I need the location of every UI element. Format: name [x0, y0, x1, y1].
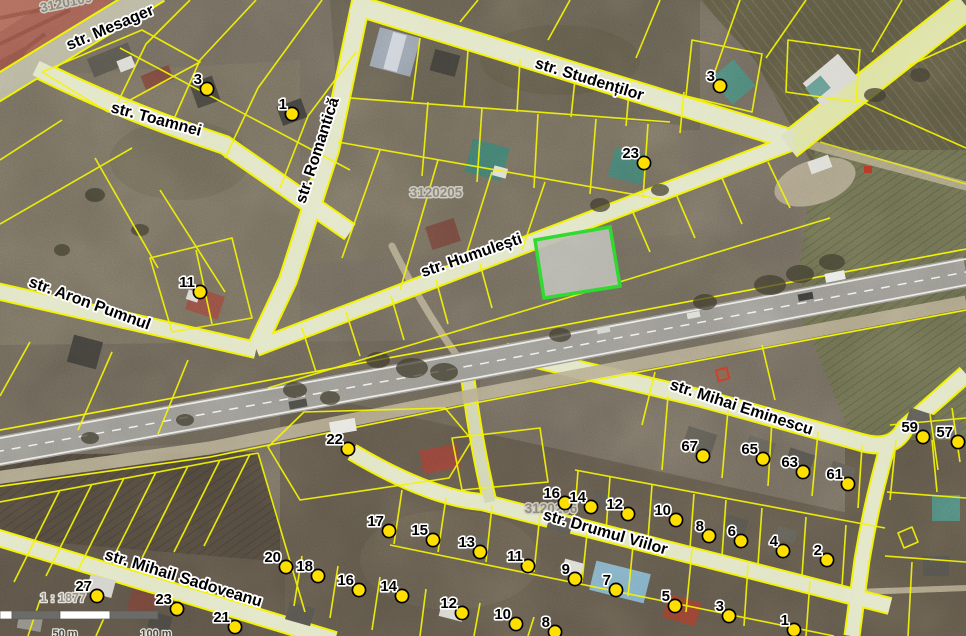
- marker-dot-icon[interactable]: [548, 625, 561, 636]
- marker-number: 5: [662, 588, 670, 605]
- marker-number: 3: [194, 71, 202, 88]
- marker-dot-icon[interactable]: [311, 569, 324, 582]
- marker-number: 12: [606, 496, 623, 513]
- marker-dot-icon[interactable]: [722, 609, 735, 622]
- marker-number: 2: [814, 542, 822, 559]
- marker-number: 59: [901, 419, 918, 436]
- marker-number: 8: [542, 614, 550, 631]
- marker-number: 14: [380, 578, 397, 595]
- marker-dot-icon[interactable]: [668, 599, 681, 612]
- marker-dot-icon[interactable]: [841, 477, 854, 490]
- marker-dot-icon[interactable]: [734, 534, 747, 547]
- marker-dot-icon[interactable]: [637, 156, 650, 169]
- marker-dot-icon[interactable]: [787, 623, 800, 636]
- marker-number: 17: [367, 513, 384, 530]
- marker-number: 11: [507, 548, 523, 565]
- marker-number: 22: [326, 431, 343, 448]
- marker-dot-icon[interactable]: [584, 500, 597, 513]
- marker-number: 20: [264, 549, 281, 566]
- marker-dot-icon[interactable]: [509, 617, 522, 630]
- marker-number: 7: [603, 572, 611, 589]
- marker-number: 9: [562, 561, 570, 578]
- marker-number: 21: [213, 609, 230, 626]
- marker-dot-icon[interactable]: [696, 449, 709, 462]
- marker-dot-icon[interactable]: [796, 465, 809, 478]
- marker-number: 23: [622, 145, 639, 162]
- marker-dot-icon[interactable]: [285, 107, 298, 120]
- marker-number: 16: [543, 485, 560, 502]
- marker-number: 65: [741, 441, 758, 458]
- marker-dot-icon[interactable]: [228, 620, 241, 633]
- marker-dot-icon[interactable]: [756, 452, 769, 465]
- map-viewport[interactable]: 3120109312010931202053120205312020631202…: [0, 0, 966, 636]
- marker-dot-icon[interactable]: [382, 524, 395, 537]
- marker-dot-icon[interactable]: [426, 533, 439, 546]
- marker-dot-icon[interactable]: [669, 513, 682, 526]
- marker-number: 18: [296, 558, 313, 575]
- marker-number: 57: [936, 424, 953, 441]
- marker-dot-icon[interactable]: [568, 572, 581, 585]
- marker-dot-icon[interactable]: [279, 560, 292, 573]
- scale-distance-label: 50 m: [52, 628, 77, 636]
- marker-dot-icon[interactable]: [90, 589, 103, 602]
- marker-dot-icon[interactable]: [951, 435, 964, 448]
- marker-dot-icon[interactable]: [713, 79, 726, 92]
- marker-number: 67: [681, 438, 698, 455]
- parcel-id-text: 3120205: [410, 185, 463, 200]
- scale-distance-label: 100 m: [140, 628, 171, 636]
- marker-number: 16: [337, 572, 354, 589]
- marker-dot-icon[interactable]: [473, 545, 486, 558]
- marker-number: 10: [494, 606, 511, 623]
- marker-number: 15: [411, 522, 428, 539]
- marker-number: 14: [569, 489, 586, 506]
- marker-dot-icon[interactable]: [776, 544, 789, 557]
- marker-number: 1: [279, 96, 287, 113]
- marker-dot-icon[interactable]: [521, 559, 534, 572]
- marker-number: 13: [458, 534, 475, 551]
- marker-dot-icon[interactable]: [702, 529, 715, 542]
- marker-dot-icon[interactable]: [916, 430, 929, 443]
- scale-ratio-text: 1 : 1877: [40, 591, 86, 605]
- marker-number: 12: [440, 595, 457, 612]
- marker-number: 6: [728, 523, 736, 540]
- marker-number: 4: [770, 533, 779, 550]
- marker-number: 63: [781, 454, 798, 471]
- marker-number: 11: [179, 274, 195, 291]
- marker-dot-icon[interactable]: [621, 507, 634, 520]
- marker-number: 10: [654, 502, 671, 519]
- marker-number: 8: [696, 518, 704, 535]
- parcel-id-label: 31202053120205: [410, 185, 463, 200]
- map-canvas[interactable]: 3120109312010931202053120205312020631202…: [0, 0, 966, 636]
- marker-dot-icon[interactable]: [609, 583, 622, 596]
- marker-number: 61: [826, 466, 843, 483]
- marker-dot-icon[interactable]: [200, 82, 213, 95]
- marker-dot-icon[interactable]: [341, 442, 354, 455]
- marker-dot-icon[interactable]: [193, 285, 206, 298]
- marker-dot-icon[interactable]: [352, 583, 365, 596]
- marker-number: 23: [155, 591, 172, 608]
- marker-number: 1: [781, 612, 789, 629]
- marker-dot-icon[interactable]: [820, 553, 833, 566]
- marker-dot-icon[interactable]: [395, 589, 408, 602]
- marker-number: 3: [716, 598, 724, 615]
- marker-dot-icon[interactable]: [455, 606, 468, 619]
- marker-dot-icon[interactable]: [170, 602, 183, 615]
- marker-number: 3: [707, 68, 715, 85]
